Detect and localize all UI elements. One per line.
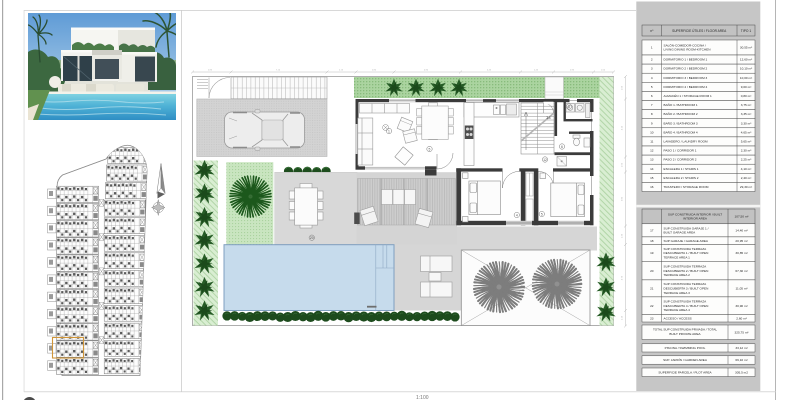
svg-text:PISCINA / SWIMMING POOL: PISCINA / SWIMMING POOL bbox=[665, 346, 706, 350]
svg-text:TERRACE AREA 1: TERRACE AREA 1 bbox=[664, 255, 691, 259]
svg-text:5,65 m²: 5,65 m² bbox=[741, 140, 752, 144]
svg-text:BAÑO 2 / BATHROOM 2: BAÑO 2 / BATHROOM 2 bbox=[664, 111, 698, 116]
svg-text:TRASTERO / STORAGE ROOM: TRASTERO / STORAGE ROOM bbox=[664, 185, 709, 189]
svg-text:2: 2 bbox=[651, 58, 653, 62]
svg-text:INTERIOR AREA: INTERIOR AREA bbox=[683, 217, 708, 221]
svg-text:30,55 m²: 30,55 m² bbox=[740, 46, 752, 50]
svg-text:DORMITORIO 1 / BEDROOM 1: DORMITORIO 1 / BEDROOM 1 bbox=[664, 58, 708, 62]
svg-text:TERRACE AREA 3: TERRACE AREA 3 bbox=[664, 291, 691, 295]
svg-text:SUPERFICIE ÚTILES / FLOOR AREA: SUPERFICIE ÚTILES / FLOOR AREA bbox=[672, 28, 727, 33]
svg-text:LAVADERO / LAUNDRY ROOM: LAVADERO / LAUNDRY ROOM bbox=[664, 140, 709, 144]
svg-text:0,80 m²: 0,80 m² bbox=[741, 94, 752, 98]
svg-text:8: 8 bbox=[651, 112, 653, 116]
svg-text:2,40 m²: 2,40 m² bbox=[741, 176, 752, 180]
svg-text:2,60 m²: 2,60 m² bbox=[736, 316, 747, 320]
svg-text:5: 5 bbox=[651, 85, 653, 89]
svg-text:325,75 m²: 325,75 m² bbox=[735, 330, 749, 334]
svg-text:15: 15 bbox=[650, 176, 654, 180]
svg-text:33,12 m²: 33,12 m² bbox=[735, 346, 747, 350]
svg-text:BAÑO 1 / BATHROOM 1: BAÑO 1 / BATHROOM 1 bbox=[664, 102, 698, 107]
svg-text:69,10 m²: 69,10 m² bbox=[735, 358, 747, 362]
svg-text:14: 14 bbox=[650, 167, 654, 171]
svg-text:305,5 m2: 305,5 m2 bbox=[735, 370, 748, 374]
svg-text:4: 4 bbox=[651, 76, 653, 80]
svg-text:5: 5 bbox=[429, 147, 431, 151]
svg-text:ACCESO / ACCESS: ACCESO / ACCESS bbox=[664, 316, 692, 320]
svg-text:SUPERFICIE PARCELA / PLOT AREA: SUPERFICIE PARCELA / PLOT AREA bbox=[658, 370, 712, 374]
svg-text:1: 1 bbox=[388, 129, 390, 133]
svg-text:1: 1 bbox=[651, 46, 653, 50]
svg-text:SUP CONSTRUIDA INTERIOR / BUIL: SUP CONSTRUIDA INTERIOR / BUILT bbox=[668, 212, 722, 216]
svg-text:ESCALERA 2 / STAIRS 2: ESCALERA 2 / STAIRS 2 bbox=[664, 176, 699, 180]
svg-text:3,75 m²: 3,75 m² bbox=[741, 103, 752, 107]
svg-text:SUP CONSTRUIDA TERRAZA: SUP CONSTRUIDA TERRAZA bbox=[664, 299, 708, 303]
svg-text:10,10 m²: 10,10 m² bbox=[740, 67, 752, 71]
svg-text:17: 17 bbox=[650, 229, 654, 233]
svg-text:BAÑO 4 / BATHROOM 4: BAÑO 4 / BATHROOM 4 bbox=[664, 129, 698, 134]
svg-text:SUP CONSTRUIDA TERRAZA: SUP CONSTRUIDA TERRAZA bbox=[664, 247, 708, 251]
svg-text:30,85 m²: 30,85 m² bbox=[735, 251, 747, 255]
svg-text:10: 10 bbox=[650, 130, 654, 134]
svg-text:14: 14 bbox=[546, 115, 551, 120]
svg-text:BUILT GARAGE AREA: BUILT GARAGE AREA bbox=[664, 231, 697, 235]
svg-text:6: 6 bbox=[651, 94, 653, 98]
svg-text:67,30 m²: 67,30 m² bbox=[735, 269, 747, 273]
svg-text:BUILT PRIVATE AREA: BUILT PRIVATE AREA bbox=[669, 332, 701, 336]
svg-text:11,05 m²: 11,05 m² bbox=[736, 287, 748, 291]
svg-text:3: 3 bbox=[651, 67, 653, 71]
svg-text:ALMACÉN 1 / STORAGE ROOM 1: ALMACÉN 1 / STORAGE ROOM 1 bbox=[664, 93, 713, 98]
svg-text:22: 22 bbox=[650, 304, 654, 308]
svg-text:4: 4 bbox=[516, 213, 518, 217]
svg-text:SUP GARAJE / GARAGE AREA: SUP GARAJE / GARAGE AREA bbox=[664, 239, 709, 243]
svg-text:2,25 m²: 2,25 m² bbox=[741, 158, 752, 162]
svg-text:11: 11 bbox=[650, 140, 653, 144]
svg-text:TIPO 1: TIPO 1 bbox=[741, 29, 752, 33]
svg-text:29,30 m²: 29,30 m² bbox=[740, 185, 752, 189]
svg-text:12: 12 bbox=[650, 149, 654, 153]
svg-text:8: 8 bbox=[568, 105, 570, 109]
svg-text:DORMITORIO 2 / BEDROOM 2: DORMITORIO 2 / BEDROOM 2 bbox=[664, 67, 708, 71]
svg-text:21: 21 bbox=[650, 287, 654, 291]
svg-text:14,40 m²: 14,40 m² bbox=[735, 229, 747, 233]
svg-text:13: 13 bbox=[650, 158, 654, 162]
svg-text:30,90 m²: 30,90 m² bbox=[735, 304, 747, 308]
svg-text:DORMITORIO 4 / BEDROOM 4: DORMITORIO 4 / BEDROOM 4 bbox=[664, 85, 708, 89]
svg-text:20: 20 bbox=[650, 269, 654, 273]
svg-text:PASO 1 / CORRIDOR 1: PASO 1 / CORRIDOR 1 bbox=[664, 149, 697, 153]
svg-text:9,00 m²: 9,00 m² bbox=[741, 85, 752, 89]
svg-text:19: 19 bbox=[650, 251, 654, 255]
svg-text:3,35 m²: 3,35 m² bbox=[741, 112, 752, 116]
svg-text:10,00 m²: 10,00 m² bbox=[740, 76, 752, 80]
svg-text:SUP. JARDÍN / GARDEN AREA: SUP. JARDÍN / GARDEN AREA bbox=[663, 358, 708, 362]
svg-text:16: 16 bbox=[650, 185, 654, 189]
svg-text:9: 9 bbox=[651, 121, 653, 125]
svg-text:3,30 m²: 3,30 m² bbox=[741, 121, 752, 125]
svg-text:TERRACE AREA 4: TERRACE AREA 4 bbox=[664, 308, 691, 312]
svg-text:5: 5 bbox=[541, 212, 543, 216]
svg-text:1:100: 1:100 bbox=[416, 395, 429, 400]
svg-text:PASO 2 / CORRIDOR 2: PASO 2 / CORRIDOR 2 bbox=[664, 158, 697, 162]
svg-text:12: 12 bbox=[543, 158, 547, 162]
svg-text:7: 7 bbox=[651, 103, 653, 107]
svg-text:LIVING DINING ROOM-KITCHEN: LIVING DINING ROOM-KITCHEN bbox=[664, 48, 711, 52]
svg-text:20,95 m²: 20,95 m² bbox=[735, 239, 747, 243]
svg-text:18: 18 bbox=[650, 239, 654, 243]
svg-text:12,60 m²: 12,60 m² bbox=[740, 58, 752, 62]
svg-text:2,30 m²: 2,30 m² bbox=[741, 149, 752, 153]
svg-text:107,50 m²: 107,50 m² bbox=[735, 215, 749, 219]
svg-text:6: 6 bbox=[561, 145, 563, 149]
svg-text:TERRACE AREA 2: TERRACE AREA 2 bbox=[664, 273, 691, 277]
svg-text:4,10 m²: 4,10 m² bbox=[741, 167, 752, 171]
svg-text:BAÑO 3 / BATHROOM 3: BAÑO 3 / BATHROOM 3 bbox=[664, 120, 698, 125]
svg-text:20: 20 bbox=[310, 236, 314, 240]
svg-text:DORMITORIO 3 / BEDROOM 3: DORMITORIO 3 / BEDROOM 3 bbox=[664, 76, 708, 80]
svg-text:ESCALERA 1 / STAIRS 1: ESCALERA 1 / STAIRS 1 bbox=[664, 167, 699, 171]
svg-text:23: 23 bbox=[650, 316, 654, 320]
svg-text:4,65 m²: 4,65 m² bbox=[741, 130, 752, 134]
